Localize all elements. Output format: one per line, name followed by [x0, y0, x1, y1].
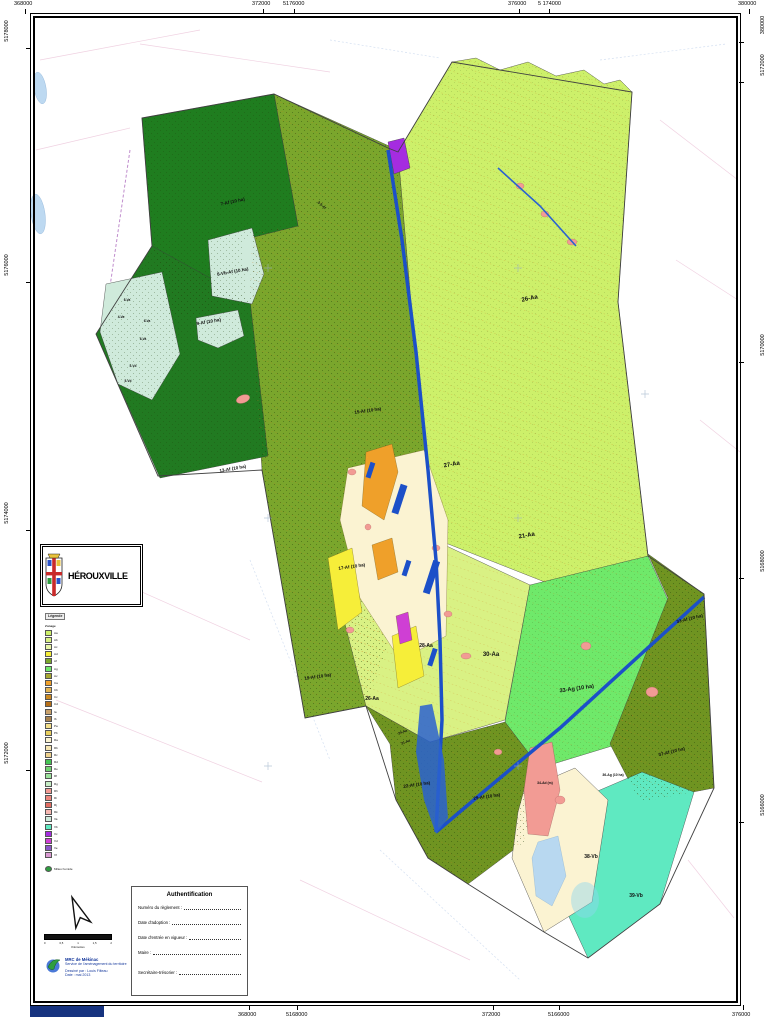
grid-coordinate-label: 5176000 [4, 245, 10, 285]
auth-field-blank [184, 904, 241, 910]
legend-item: Ac [45, 643, 137, 650]
auth-field-label: Secrétaire-trésorier : [138, 970, 177, 975]
legend-item: Cb [45, 687, 137, 694]
legend-header: Légende [45, 613, 65, 620]
zone-label: 6-Va [140, 337, 147, 341]
legend-swatch [45, 781, 52, 787]
zone-label: 38-Vb [584, 854, 598, 860]
legend-swatch [45, 658, 52, 664]
legend-item: Ad [45, 651, 137, 658]
legend-item: Rh [45, 787, 137, 794]
grid-tick [263, 9, 264, 14]
legend-item: Ab [45, 636, 137, 643]
legend-item: Cc [45, 694, 137, 701]
authentication-fields: Numéro du règlement :Date d'adoption :Da… [138, 904, 241, 975]
legend-item: Vf [45, 852, 137, 859]
legend-item: Ri [45, 794, 137, 801]
legend-label: Ra [54, 738, 58, 742]
mrc-logo-icon [45, 957, 62, 974]
legend-swatch [45, 809, 52, 815]
legend-label: Vb [54, 825, 58, 829]
legend-item: Rb [45, 744, 137, 751]
legend-swatch [45, 723, 52, 729]
wetland-label: Milieu humide [54, 867, 73, 871]
legend-item: Rd [45, 758, 137, 765]
legend-label: Vf [54, 853, 57, 857]
legend-item: Rf [45, 773, 137, 780]
auth-field-label: Numéro du règlement : [138, 905, 182, 910]
title-block: HÉROUXVILLE [40, 544, 143, 607]
legend-swatch [45, 651, 52, 657]
legend-swatch [45, 716, 52, 722]
grid-coordinate-label: 5 174000 [538, 1, 561, 7]
legend-item: Cd [45, 701, 137, 708]
legend-swatch [45, 630, 52, 636]
grid-coordinate-label: 380000 [760, 5, 766, 45]
zone-label: 6-Va [124, 298, 131, 302]
grid-coordinate-label: 5168000 [760, 541, 766, 581]
legend-label: Rh [54, 789, 58, 793]
authentication-box: Authentification Numéro du règlement :Da… [131, 886, 248, 996]
grid-coordinate-label: 5166000 [548, 1012, 569, 1018]
legend-swatch [45, 709, 52, 715]
zone-label: 36-Ag (10 ha) [602, 773, 623, 777]
grid-tick [26, 770, 31, 771]
legend-label: Ve [54, 846, 58, 850]
legend-label: Rb [54, 746, 58, 750]
grid-tick [249, 1005, 250, 1010]
legend-swatch [45, 759, 52, 765]
scale-tick-label: 0 [44, 941, 46, 945]
grid-coordinate-label: 5172000 [760, 45, 766, 85]
grid-tick [297, 1005, 298, 1010]
grid-tick [739, 42, 744, 43]
auth-field: Secrétaire-trésorier : [138, 969, 241, 975]
coat-of-arms [43, 552, 65, 600]
zone-label: 5-Vd [125, 379, 132, 383]
legend-item: Ra [45, 737, 137, 744]
legend-item: Vc [45, 830, 137, 837]
wetland-swatch [45, 866, 52, 872]
legend-label: Pb [54, 731, 58, 735]
legend-swatch [45, 637, 52, 643]
municipality-title: HÉROUXVILLE [68, 571, 128, 581]
grid-tick [559, 1005, 560, 1010]
grid-tick [739, 82, 744, 83]
legend-swatch [45, 666, 52, 672]
scale-tick-label: 1,5 [93, 941, 97, 945]
grid-tick [739, 822, 744, 823]
legend-swatch [45, 730, 52, 736]
legend-swatch [45, 673, 52, 679]
grid-coordinate-label: 368000 [14, 1, 32, 7]
grid-coordinate-label: 5178000 [4, 11, 10, 51]
credits-block: MRC de Mékinac Service de l'aménagement … [45, 957, 140, 977]
legend-label: Rd [54, 760, 58, 764]
legend-item: Ca [45, 679, 137, 686]
grid-coordinate-label: 376000 [508, 1, 526, 7]
legend-label: Av [54, 674, 57, 678]
legend-label: Af [54, 659, 57, 663]
auth-field-label: Maire : [138, 950, 151, 955]
legend-swatch [45, 788, 52, 794]
legend-label: Cc [54, 695, 58, 699]
legend-items: AaAbAcAdAfAgAvCaCbCcCdIaIbPaPbRaRbRcRdRe… [45, 629, 137, 859]
legend-label: Cd [54, 702, 58, 706]
legend-swatch [45, 838, 52, 844]
auth-field: Maire : [138, 949, 241, 955]
legend-label: Ab [54, 638, 58, 642]
zone-label: 4-Va [118, 315, 125, 319]
grid-coordinate-label: 380000 [738, 1, 756, 7]
auth-field-blank [179, 969, 241, 975]
grid-coordinate-label: 5166000 [760, 785, 766, 825]
legend-label: Cb [54, 688, 58, 692]
legend-item: Re [45, 766, 137, 773]
legend-label: Rg [54, 782, 58, 786]
legend-swatch [45, 680, 52, 686]
legend-item: Ve [45, 845, 137, 852]
legend-swatch [45, 701, 52, 707]
grid-coordinate-label: 5176000 [283, 1, 304, 7]
legend-label: Ia [54, 710, 57, 714]
grid-coordinate-label: 376000 [732, 1012, 750, 1018]
legend-swatch [45, 766, 52, 772]
scale-tick-label: 0,5 [59, 941, 63, 945]
legend-item: Rg [45, 780, 137, 787]
print-color-bar [30, 1006, 104, 1017]
legend-item: Ib [45, 715, 137, 722]
auth-field-blank [153, 949, 241, 955]
scale-bar-rule [44, 934, 112, 940]
legend-label: Vc [54, 832, 58, 836]
legend-swatch [45, 831, 52, 837]
legend-swatch [45, 687, 52, 693]
legend-swatch [45, 644, 52, 650]
grid-coordinate-label: 5172000 [4, 733, 10, 773]
legend-item: Af [45, 658, 137, 665]
grid-tick [26, 530, 31, 531]
legend-label: Ad [54, 652, 58, 656]
legend-subtitle: Zonage [45, 624, 137, 628]
legend-item: Vb [45, 823, 137, 830]
legend-item: Vd [45, 837, 137, 844]
grid-coordinate-label: 5174000 [4, 493, 10, 533]
grid-tick [294, 9, 295, 14]
legend-item: Pb [45, 730, 137, 737]
legend-item: Rk [45, 809, 137, 816]
legend-swatch [45, 773, 52, 779]
auth-field: Date d'adoption : [138, 919, 241, 925]
legend-label: Va [54, 817, 57, 821]
grid-tick [519, 9, 520, 14]
zone-label: 30-Aa [483, 652, 500, 658]
legend-item: Pa [45, 722, 137, 729]
north-arrow-icon [62, 893, 94, 936]
zone-label: 5-Vd [130, 364, 137, 368]
zone-label: 39-Vb [629, 893, 643, 899]
legend-label: Rj [54, 803, 57, 807]
legend-item: Rc [45, 751, 137, 758]
legend-swatch [45, 816, 52, 822]
legend-label: Ib [54, 717, 57, 721]
legend-label: Re [54, 767, 58, 771]
grid-coordinate-label: 368000 [238, 1012, 256, 1018]
legend-item: Rj [45, 802, 137, 809]
legend-label: Rc [54, 753, 58, 757]
credit-department: Service de l'aménagement du territoire [65, 962, 127, 966]
legend-label: Rk [54, 810, 58, 814]
authentication-title: Authentification [138, 892, 241, 898]
legend: Légende Zonage AaAbAcAdAfAgAvCaCbCcCdIaI… [45, 604, 137, 872]
auth-field-label: Date d'entrée en vigueur : [138, 935, 187, 940]
grid-tick [26, 282, 31, 283]
legend-label: Ac [54, 645, 58, 649]
auth-field-blank [189, 934, 241, 940]
auth-field: Date d'entrée en vigueur : [138, 934, 241, 940]
legend-swatch [45, 737, 52, 743]
grid-tick [743, 1005, 744, 1010]
zone-label: 6-Va [144, 319, 151, 323]
grid-tick [25, 9, 26, 14]
legend-label: Ag [54, 667, 58, 671]
auth-field-blank [172, 919, 241, 925]
grid-tick [739, 578, 744, 579]
legend-swatch [45, 745, 52, 751]
legend-swatch [45, 694, 52, 700]
legend-swatch [45, 752, 52, 758]
legend-label: Rf [54, 774, 57, 778]
grid-coordinate-label: 5170000 [760, 325, 766, 365]
legend-item: Ia [45, 708, 137, 715]
grid-tick [749, 9, 750, 14]
legend-label: Vd [54, 839, 58, 843]
scale-bar: 00,511,52 Kilomètres [44, 934, 112, 949]
legend-swatch [45, 852, 52, 858]
grid-coordinate-label: 5168000 [286, 1012, 307, 1018]
grid-tick [26, 48, 31, 49]
zone-label: 34-Ad (m) [537, 781, 553, 785]
grid-tick [739, 362, 744, 363]
auth-field: Numéro du règlement : [138, 904, 241, 910]
legend-swatch [45, 795, 52, 801]
legend-item: Av [45, 672, 137, 679]
grid-tick [493, 1005, 494, 1010]
auth-field-label: Date d'adoption : [138, 920, 170, 925]
legend-label: Pa [54, 724, 58, 728]
grid-coordinate-label: 372000 [252, 1, 270, 7]
legend-label: Ri [54, 796, 57, 800]
legend-item: Aa [45, 629, 137, 636]
credit-date: Date : mai 2013 [65, 973, 127, 977]
legend-item: Ag [45, 665, 137, 672]
legend-label: Ca [54, 681, 58, 685]
map-sheet: 7-Af (10 ha)3-5-Af8-Vb-Af (10 ha)9-Af (1… [0, 0, 770, 1024]
legend-item: Va [45, 816, 137, 823]
zone-label: 28-Aa [419, 643, 433, 649]
scale-bar-unit: Kilomètres [44, 945, 112, 949]
legend-label: Aa [54, 631, 58, 635]
grid-tick [549, 9, 550, 14]
scale-tick-label: 2 [110, 941, 112, 945]
legend-swatch [45, 802, 52, 808]
legend-swatch [45, 845, 52, 851]
legend-item-wetland: Milieu humide [45, 865, 137, 872]
zone-label: 26-Aa [365, 696, 379, 702]
legend-swatch [45, 824, 52, 830]
grid-coordinate-label: 372000 [482, 1012, 500, 1018]
